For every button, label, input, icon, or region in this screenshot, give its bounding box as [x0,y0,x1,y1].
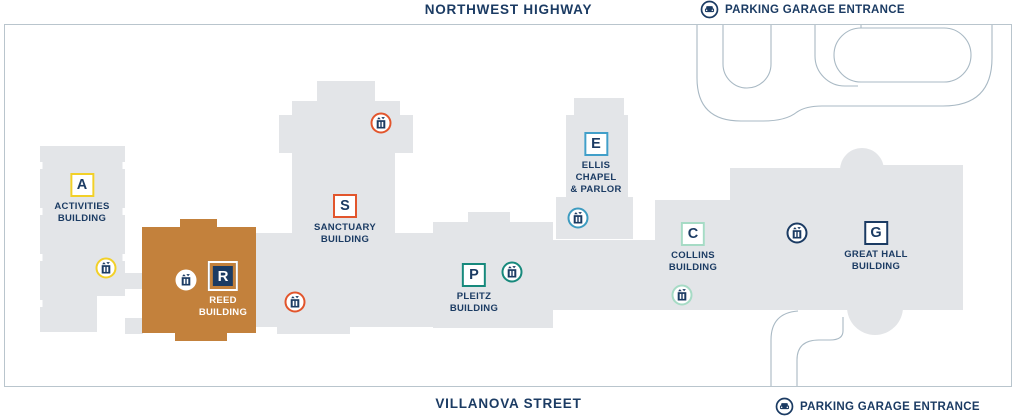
badge-letter: G [870,226,881,241]
building-name: REED BUILDING [199,295,247,319]
badge-letter: C [688,227,698,242]
badge-letter: A [77,178,87,193]
building-name: ACTIVITIES BUILDING [54,201,109,225]
building-badge-r: R [208,261,238,291]
building-great-hall[interactable]: G GREAT HALL BUILDING [844,221,908,273]
elevator-icon [95,257,117,279]
car-icon [775,397,794,416]
building-ellis-chapel[interactable]: E ELLIS CHAPEL & PARLOR [570,132,621,196]
building-name: COLLINS BUILDING [669,250,717,274]
parking-garage-entrance-bottom: PARKING GARAGE ENTRANCE [775,397,980,416]
elevator-icon [786,222,808,244]
elevator-icon [501,261,523,283]
building-badge-s: S [333,194,357,218]
building-badge-a: A [70,173,94,197]
elevator-icon [175,269,197,291]
east-corridor-shape [553,240,657,310]
building-badge-g: G [864,221,888,245]
building-name: SANCTUARY BUILDING [314,222,376,246]
car-icon [700,0,719,19]
building-badge-p: P [462,263,486,287]
badge-letter: E [591,137,601,152]
building-reed[interactable]: R REED BUILDING [199,261,247,319]
badge-letter: R [218,269,229,284]
parking-garage-entrance-label: PARKING GARAGE ENTRANCE [800,401,980,413]
elevator-icon [370,112,392,134]
elevator-icon [671,284,693,306]
central-corridor-shape [256,233,433,334]
building-name: ELLIS CHAPEL & PARLOR [570,160,621,196]
building-sanctuary[interactable]: S SANCTUARY BUILDING [314,194,376,246]
building-footprints [38,81,964,341]
building-pleitz[interactable]: P PLEITZ BUILDING [450,263,498,315]
elevator-icon [567,207,589,229]
building-collins[interactable]: C COLLINS BUILDING [669,222,717,274]
roads-bottom-right [771,311,843,386]
campus-map: NORTHWEST HIGHWAY VILLANOVA STREET PARKI… [0,0,1017,417]
building-name: GREAT HALL BUILDING [844,249,908,273]
building-activities[interactable]: A ACTIVITIES BUILDING [54,173,109,225]
building-badge-e: E [584,132,608,156]
parking-garage-entrance-label: PARKING GARAGE ENTRANCE [725,4,905,16]
badge-letter: P [469,268,479,283]
badge-letter: S [340,199,350,214]
building-badge-c: C [681,222,705,246]
parking-garage-entrance-top: PARKING GARAGE ENTRANCE [700,0,905,19]
elevator-icon [284,291,306,313]
map-base-layer [0,0,1017,417]
roads-top-right [697,25,992,121]
building-name: PLEITZ BUILDING [450,291,498,315]
